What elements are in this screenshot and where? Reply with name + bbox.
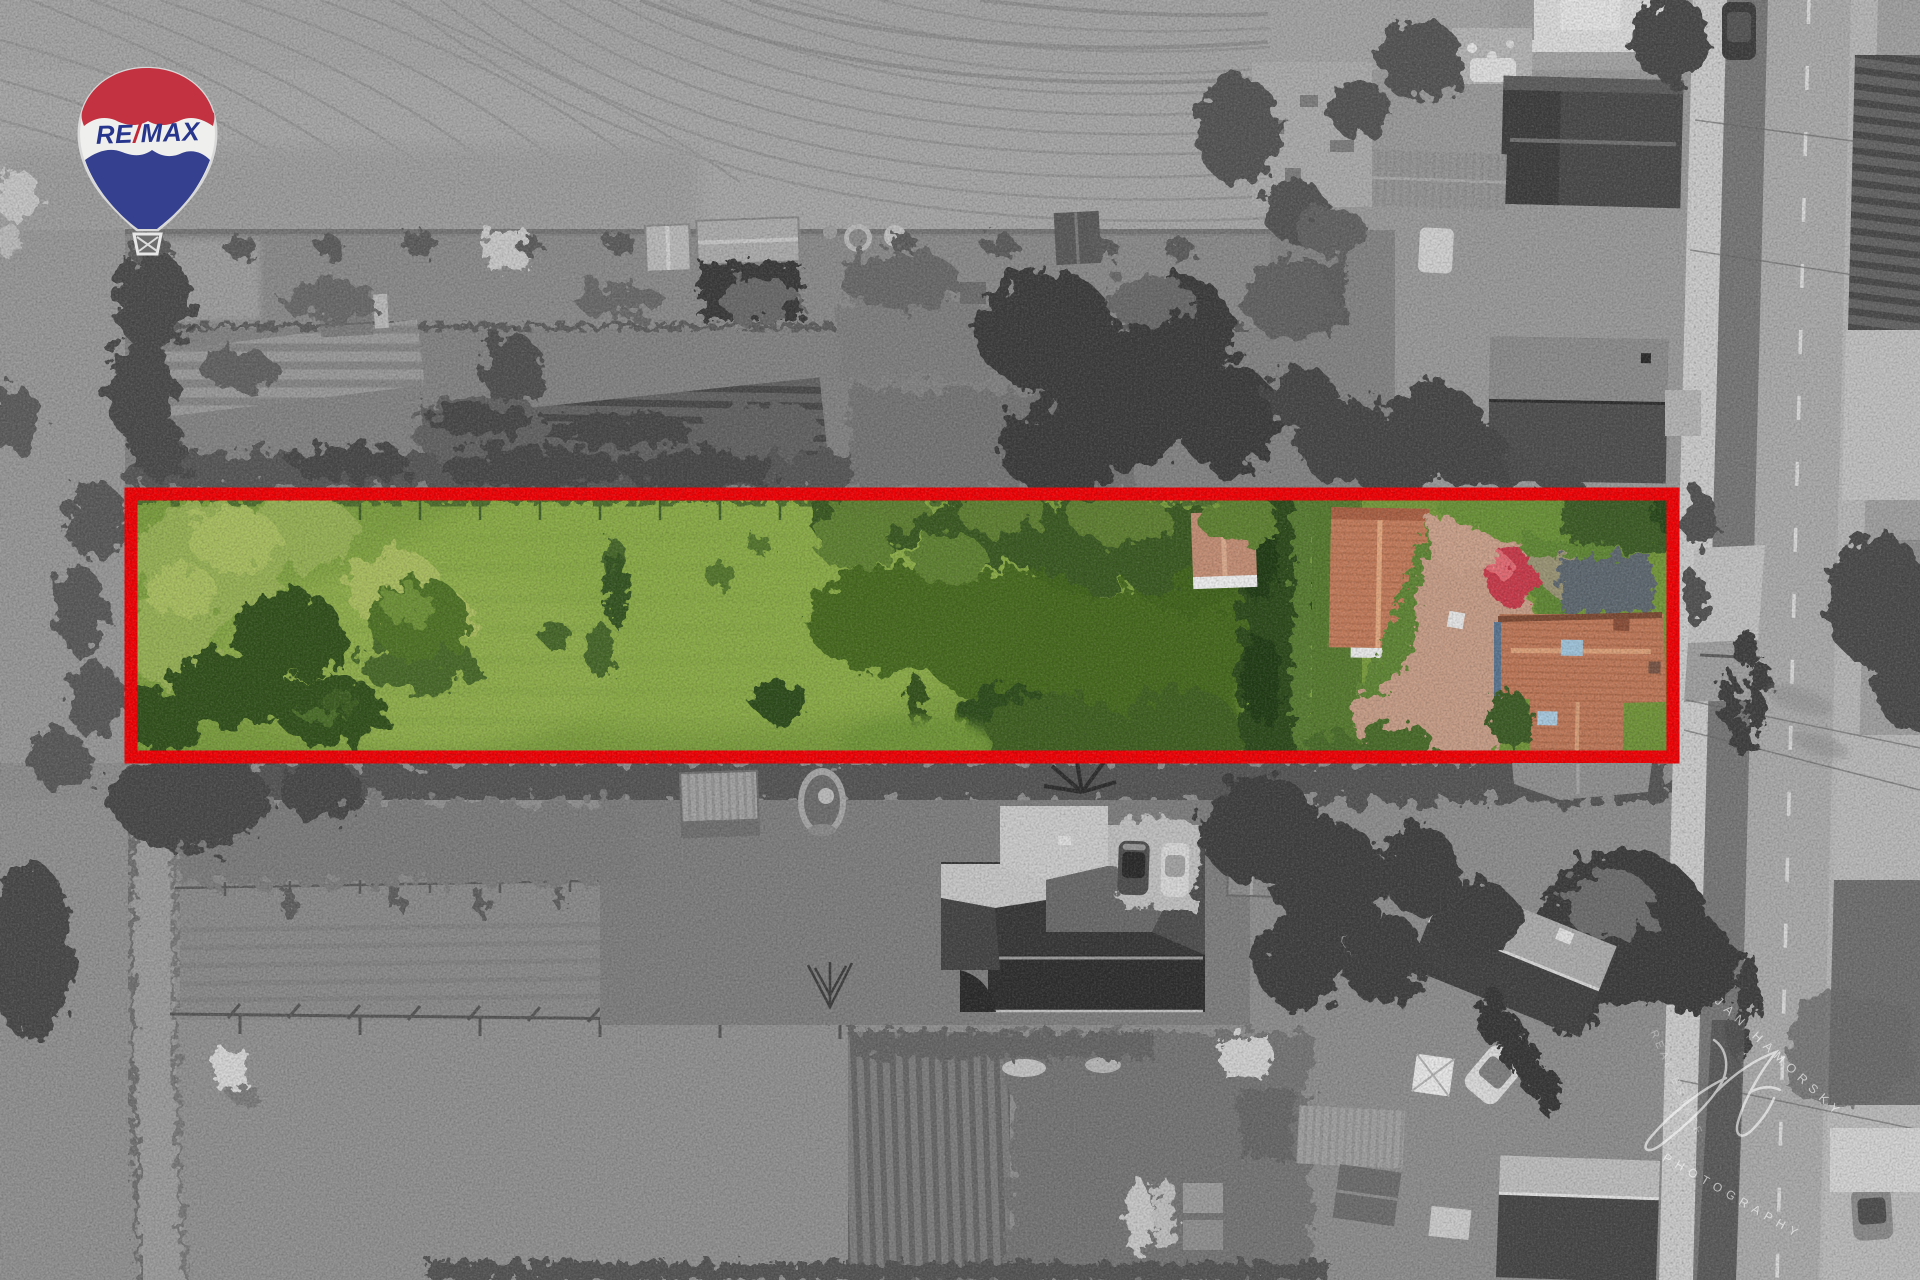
svg-text:RE/MAX: RE/MAX [95,116,201,150]
